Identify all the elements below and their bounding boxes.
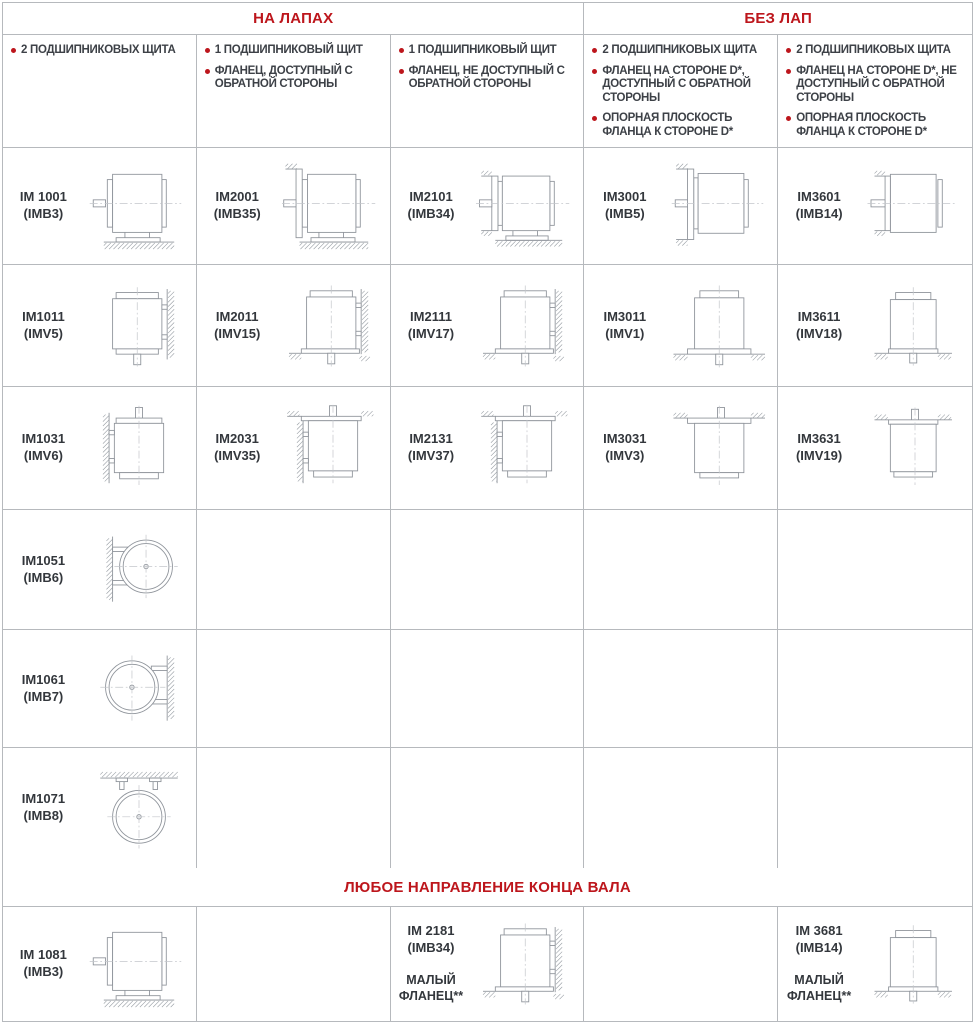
mounting-cell-im1031: IM1031(IMV6) — [3, 387, 197, 509]
im-code: IM2011 — [200, 309, 274, 326]
im-code: IM3031 — [588, 431, 662, 448]
im-code: IM2101 — [394, 189, 468, 206]
description-bullet-item: 2 ПОДШИПНИКОВЫХ ЩИТА — [11, 44, 175, 58]
mounting-cell-im2131: IM2131(IMV37) — [391, 387, 585, 509]
bullet-icon — [786, 48, 791, 53]
im-code-label: IM2011(IMV15) — [200, 309, 274, 343]
description-bullet-item: 2 ПОДШИПНИКОВЫХ ЩИТА — [592, 44, 756, 58]
empty-cell — [584, 748, 778, 868]
description-text: ОПОРНАЯ ПЛОСКОСТЬ ФЛАНЦА К СТОРОНЕ D* — [796, 112, 966, 139]
diagram-container — [86, 920, 192, 1008]
bullet-icon — [592, 116, 597, 121]
mounting-cell-im2181: IM 2181(IMB34)МАЛЫЙ ФЛАНЕЦ** — [391, 907, 585, 1021]
imb-equivalent-code: (IMV18) — [782, 326, 856, 343]
im-code-label: IM2031(IMV35) — [200, 431, 274, 465]
motor-mounting-diagram — [862, 162, 968, 250]
im-code-label: IM 2181(IMB34)МАЛЫЙ ФЛАНЕЦ** — [394, 923, 468, 1004]
empty-cell — [778, 630, 972, 747]
imb-equivalent-code: (IMB5) — [588, 206, 662, 223]
im-code-label: IM 3681(IMB14)МАЛЫЙ ФЛАНЕЦ** — [782, 923, 856, 1004]
empty-cell — [197, 907, 391, 1021]
empty-cell — [584, 907, 778, 1021]
description-text: 2 ПОДШИПНИКОВЫХ ЩИТА — [602, 44, 756, 58]
description-text: ФЛАНЕЦ НА СТОРОНЕ D*, ДОСТУПНЫЙ С ОБРАТН… — [602, 65, 771, 106]
description-bullet-item: ОПОРНАЯ ПЛОСКОСТЬ ФЛАНЦА К СТОРОНЕ D* — [786, 112, 966, 139]
mounting-cell-im1061: IM1061(IMB7) — [3, 630, 197, 747]
im-code: IM2031 — [200, 431, 274, 448]
im-code: IM1051 — [6, 553, 80, 570]
diagram-row-3: IM1031(IMV6)IM2031(IMV35)IM2131(IMV37)IM… — [3, 387, 972, 510]
description-text: ФЛАНЕЦ, ДОСТУПНЫЙ С ОБРАТНОЙ СТОРОНЫ — [215, 65, 384, 92]
small-flange-note: МАЛЫЙ ФЛАНЕЦ** — [782, 973, 856, 1004]
mounting-cell-im1051: IM1051(IMB6) — [3, 510, 197, 629]
mounting-cell-im3031: IM3031(IMV3) — [584, 387, 778, 509]
diagram-container — [86, 526, 192, 614]
imb-equivalent-code: (IMV37) — [394, 448, 468, 465]
bullet-icon — [11, 48, 16, 53]
description-bullet-item: 2 ПОДШИПНИКОВЫХ ЩИТА — [786, 44, 950, 58]
imb-equivalent-code: (IMB34) — [394, 940, 468, 957]
motor-mounting-diagram — [86, 162, 192, 250]
diagram-container — [86, 162, 192, 250]
imb-equivalent-code: (IMB14) — [782, 206, 856, 223]
description-bullet-item: ФЛАНЕЦ, НЕ ДОСТУПНЫЙ С ОБРАТНОЙ СТОРОНЫ — [399, 65, 578, 92]
motor-mounting-diagram — [86, 645, 192, 733]
imb-equivalent-code: (IMB34) — [394, 206, 468, 223]
description-bullet-item: 1 ПОДШИПНИКОВЫЙ ЩИТ — [399, 44, 557, 58]
im-code-label: IM3001(IMB5) — [588, 189, 662, 223]
diagram-container — [668, 404, 774, 492]
mounting-cell-im1081: IM 1081(IMB3) — [3, 907, 197, 1021]
im-code: IM1011 — [6, 309, 80, 326]
diagram-container — [862, 404, 968, 492]
imb-equivalent-code: (IMB35) — [200, 206, 274, 223]
column-description-3: 1 ПОДШИПНИКОВЫЙ ЩИТФЛАНЕЦ, НЕ ДОСТУПНЫЙ … — [391, 35, 585, 147]
im-code-label: IM2001(IMB35) — [200, 189, 274, 223]
empty-cell — [584, 630, 778, 747]
im-code-label: IM1011(IMV5) — [6, 309, 80, 343]
empty-cell — [391, 748, 585, 868]
im-code-label: IM3601(IMB14) — [782, 189, 856, 223]
group-header-row: НА ЛАПАХ БЕЗ ЛАП — [3, 3, 972, 35]
mounting-cell-im3681: IM 3681(IMB14)МАЛЫЙ ФЛАНЕЦ** — [778, 907, 972, 1021]
im-code-label: IM1071(IMB8) — [6, 791, 80, 825]
empty-cell — [197, 748, 391, 868]
imb-equivalent-code: (IMB6) — [6, 570, 80, 587]
motor-mounting-diagram — [474, 162, 580, 250]
mounting-cell-im2101: IM2101(IMB34) — [391, 148, 585, 264]
description-bullet-item: ОПОРНАЯ ПЛОСКОСТЬ ФЛАНЦА К СТОРОНЕ D* — [592, 112, 771, 139]
bullet-icon — [205, 69, 210, 74]
diagram-row-6: IM1071(IMB8) — [3, 748, 972, 868]
imb-equivalent-code: (IMV6) — [6, 448, 80, 465]
diagram-container — [86, 282, 192, 370]
column-descriptions-row: 2 ПОДШИПНИКОВЫХ ЩИТА1 ПОДШИПНИКОВЫЙ ЩИТФ… — [3, 35, 972, 148]
motor-mounting-diagram — [280, 162, 386, 250]
imb-equivalent-code: (IMV3) — [588, 448, 662, 465]
imb-equivalent-code: (IMB14) — [782, 940, 856, 957]
empty-cell — [197, 510, 391, 629]
motor-mounting-diagram — [86, 920, 192, 1008]
im-code: IM3011 — [588, 309, 662, 326]
diagram-container — [668, 282, 774, 370]
motor-mounting-diagram — [862, 404, 968, 492]
motor-mounting-diagram — [668, 404, 774, 492]
description-bullet-item: ФЛАНЕЦ НА СТОРОНЕ D*, ДОСТУПНЫЙ С ОБРАТН… — [592, 65, 771, 106]
diagram-row-1: IM 1001(IMB3)IM2001(IMB35)IM2101(IMB34)I… — [3, 148, 972, 265]
im-code: IM2001 — [200, 189, 274, 206]
im-code: IM3601 — [782, 189, 856, 206]
description-bullet-item: ФЛАНЕЦ НА СТОРОНЕ D*, НЕ ДОСТУПНЫЙ С ОБР… — [786, 65, 966, 106]
mounting-cell-im3011: IM3011(IMV1) — [584, 265, 778, 386]
description-bullet-item: 1 ПОДШИПНИКОВЫЙ ЩИТ — [205, 44, 363, 58]
description-text: 1 ПОДШИПНИКОВЫЙ ЩИТ — [409, 44, 557, 58]
motor-mounting-diagram — [862, 920, 968, 1008]
header-without-feet: БЕЗ ЛАП — [584, 3, 972, 34]
empty-cell — [778, 510, 972, 629]
diagram-container — [474, 282, 580, 370]
imb-equivalent-code: (IMB3) — [6, 964, 80, 981]
bullet-icon — [399, 69, 404, 74]
description-text: ФЛАНЕЦ, НЕ ДОСТУПНЫЙ С ОБРАТНОЙ СТОРОНЫ — [409, 65, 578, 92]
mounting-cell-im3601: IM3601(IMB14) — [778, 148, 972, 264]
diagram-container — [474, 404, 580, 492]
im-code: IM1071 — [6, 791, 80, 808]
description-text: 1 ПОДШИПНИКОВЫЙ ЩИТ — [215, 44, 363, 58]
header-any-shaft-direction: ЛЮБОЕ НАПРАВЛЕНИЕ КОНЦА ВАЛА — [3, 868, 972, 906]
im-code: IM3001 — [588, 189, 662, 206]
mounting-cell-im2111: IM2111(IMV17) — [391, 265, 585, 386]
imb-equivalent-code: (IMV1) — [588, 326, 662, 343]
description-bullet-item: ФЛАНЕЦ, ДОСТУПНЫЙ С ОБРАТНОЙ СТОРОНЫ — [205, 65, 384, 92]
motor-mounting-diagram — [668, 282, 774, 370]
imb-equivalent-code: (IMV17) — [394, 326, 468, 343]
mounting-cell-im2001: IM2001(IMB35) — [197, 148, 391, 264]
diagram-container — [862, 920, 968, 1008]
im-code-label: IM3611(IMV18) — [782, 309, 856, 343]
diagram-container — [86, 404, 192, 492]
column-description-5: 2 ПОДШИПНИКОВЫХ ЩИТАФЛАНЕЦ НА СТОРОНЕ D*… — [778, 35, 972, 147]
motor-mounting-arrangements-table: НА ЛАПАХ БЕЗ ЛАП 2 ПОДШИПНИКОВЫХ ЩИТА1 П… — [2, 2, 973, 1022]
description-text: 2 ПОДШИПНИКОВЫХ ЩИТА — [21, 44, 175, 58]
bullet-icon — [592, 69, 597, 74]
im-code-label: IM1051(IMB6) — [6, 553, 80, 587]
diagram-row-2: IM1011(IMV5)IM2011(IMV15)IM2111(IMV17)IM… — [3, 265, 972, 387]
diagram-container — [86, 764, 192, 852]
diagram-container — [862, 162, 968, 250]
header-on-feet: НА ЛАПАХ — [3, 3, 584, 34]
mounting-cell-im1011: IM1011(IMV5) — [3, 265, 197, 386]
mounting-cell-im1001: IM 1001(IMB3) — [3, 148, 197, 264]
im-code-label: IM2101(IMB34) — [394, 189, 468, 223]
im-code: IM 1001 — [6, 189, 80, 206]
bullet-icon — [205, 48, 210, 53]
diagram-container — [668, 162, 774, 250]
small-flange-note: МАЛЫЙ ФЛАНЕЦ** — [394, 973, 468, 1004]
bullet-icon — [786, 116, 791, 121]
diagram-row-4: IM1051(IMB6) — [3, 510, 972, 630]
empty-cell — [778, 748, 972, 868]
motor-mounting-diagram — [474, 920, 580, 1008]
imb-equivalent-code: (IMV5) — [6, 326, 80, 343]
im-code-label: IM1061(IMB7) — [6, 672, 80, 706]
mounting-cell-im2031: IM2031(IMV35) — [197, 387, 391, 509]
diagram-row-5: IM1061(IMB7) — [3, 630, 972, 748]
im-code-label: IM3011(IMV1) — [588, 309, 662, 343]
empty-cell — [391, 630, 585, 747]
mounting-cell-im1071: IM1071(IMB8) — [3, 748, 197, 868]
im-code-label: IM1031(IMV6) — [6, 431, 80, 465]
bullet-icon — [399, 48, 404, 53]
im-code-label: IM 1001(IMB3) — [6, 189, 80, 223]
bullet-icon — [786, 69, 791, 74]
any-direction-header-row: ЛЮБОЕ НАПРАВЛЕНИЕ КОНЦА ВАЛА — [3, 868, 972, 907]
motor-mounting-diagram — [86, 282, 192, 370]
description-text: ОПОРНАЯ ПЛОСКОСТЬ ФЛАНЦА К СТОРОНЕ D* — [602, 112, 771, 139]
im-code: IM1061 — [6, 672, 80, 689]
imb-equivalent-code: (IMV35) — [200, 448, 274, 465]
motor-mounting-diagram — [862, 282, 968, 370]
motor-mounting-diagram — [474, 404, 580, 492]
imb-equivalent-code: (IMB7) — [6, 689, 80, 706]
diagram-container — [86, 645, 192, 733]
imb-equivalent-code: (IMV19) — [782, 448, 856, 465]
description-text: ФЛАНЕЦ НА СТОРОНЕ D*, НЕ ДОСТУПНЫЙ С ОБР… — [796, 65, 966, 106]
diagram-container — [862, 282, 968, 370]
diagram-container — [474, 920, 580, 1008]
im-code-label: IM3031(IMV3) — [588, 431, 662, 465]
im-code-label: IM2131(IMV37) — [394, 431, 468, 465]
motor-mounting-diagram — [668, 162, 774, 250]
empty-cell — [391, 510, 585, 629]
mounting-cell-im2011: IM2011(IMV15) — [197, 265, 391, 386]
imb-equivalent-code: (IMB8) — [6, 808, 80, 825]
mounting-cell-im3001: IM3001(IMB5) — [584, 148, 778, 264]
diagram-container — [474, 162, 580, 250]
im-code-label: IM3631(IMV19) — [782, 431, 856, 465]
empty-cell — [584, 510, 778, 629]
any-direction-row: IM 1081(IMB3)IM 2181(IMB34)МАЛЫЙ ФЛАНЕЦ*… — [3, 907, 972, 1021]
description-text: 2 ПОДШИПНИКОВЫХ ЩИТА — [796, 44, 950, 58]
im-code: IM 2181 — [394, 923, 468, 940]
column-description-1: 2 ПОДШИПНИКОВЫХ ЩИТА — [3, 35, 197, 147]
im-code: IM3631 — [782, 431, 856, 448]
im-code-label: IM 1081(IMB3) — [6, 947, 80, 981]
motor-mounting-diagram — [86, 404, 192, 492]
column-description-2: 1 ПОДШИПНИКОВЫЙ ЩИТФЛАНЕЦ, ДОСТУПНЫЙ С О… — [197, 35, 391, 147]
motor-mounting-diagram — [86, 764, 192, 852]
im-code: IM 1081 — [6, 947, 80, 964]
bullet-icon — [592, 48, 597, 53]
empty-cell — [197, 630, 391, 747]
im-code: IM2111 — [394, 309, 468, 326]
diagram-container — [280, 404, 386, 492]
im-code: IM 3681 — [782, 923, 856, 940]
diagram-container — [280, 282, 386, 370]
im-code-label: IM2111(IMV17) — [394, 309, 468, 343]
column-description-4: 2 ПОДШИПНИКОВЫХ ЩИТАФЛАНЕЦ НА СТОРОНЕ D*… — [584, 35, 778, 147]
mounting-cell-im3611: IM3611(IMV18) — [778, 265, 972, 386]
im-code: IM1031 — [6, 431, 80, 448]
mounting-cell-im3631: IM3631(IMV19) — [778, 387, 972, 509]
imb-equivalent-code: (IMB3) — [6, 206, 80, 223]
im-code: IM3611 — [782, 309, 856, 326]
motor-mounting-diagram — [280, 404, 386, 492]
motor-mounting-diagram — [86, 526, 192, 614]
imb-equivalent-code: (IMV15) — [200, 326, 274, 343]
diagram-container — [280, 162, 386, 250]
motor-mounting-diagram — [474, 282, 580, 370]
motor-mounting-diagram — [280, 282, 386, 370]
im-code: IM2131 — [394, 431, 468, 448]
